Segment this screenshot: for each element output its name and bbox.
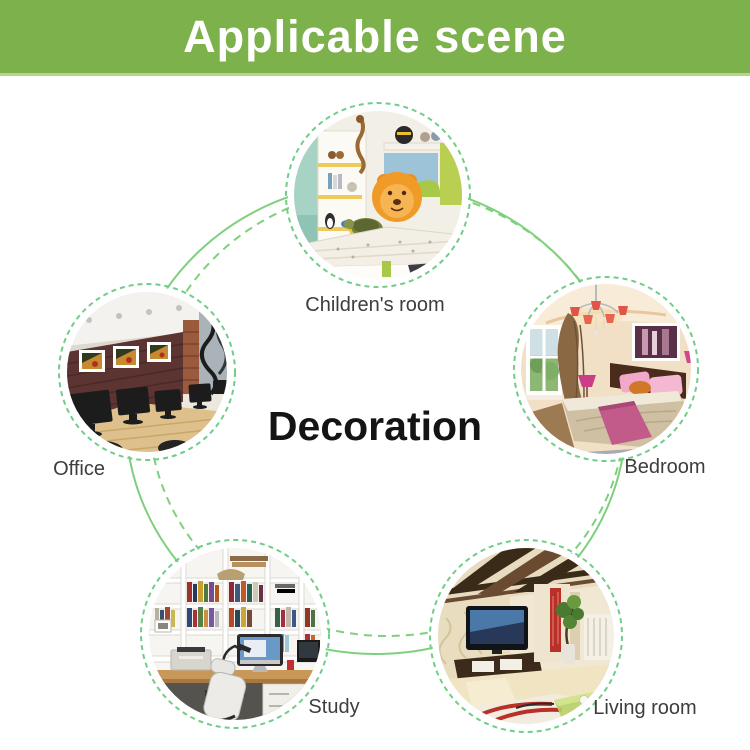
- center-label: Decoration: [268, 403, 482, 450]
- diagram-canvas: [0, 0, 750, 750]
- office-label: Office: [53, 458, 105, 481]
- living-room-photo: [438, 548, 614, 724]
- childrens-room-circle: [286, 103, 470, 287]
- bedroom-circle: [514, 269, 698, 461]
- office-frame-1: [79, 350, 105, 372]
- childrens-room-photo: [294, 111, 462, 279]
- childrens-room-label: Children's room: [305, 294, 444, 317]
- office-frame-2: [113, 346, 139, 368]
- office-frame-3: [147, 342, 171, 362]
- study-circle: [141, 540, 329, 728]
- decoration-diagram: Decoration Children's room Office Bedroo…: [0, 0, 750, 750]
- living-room-label: Living room: [593, 697, 696, 720]
- page: Applicable scene: [0, 0, 750, 750]
- office-circle: [59, 284, 235, 460]
- bedroom-label: Bedroom: [624, 456, 705, 479]
- study-label: Study: [308, 696, 359, 719]
